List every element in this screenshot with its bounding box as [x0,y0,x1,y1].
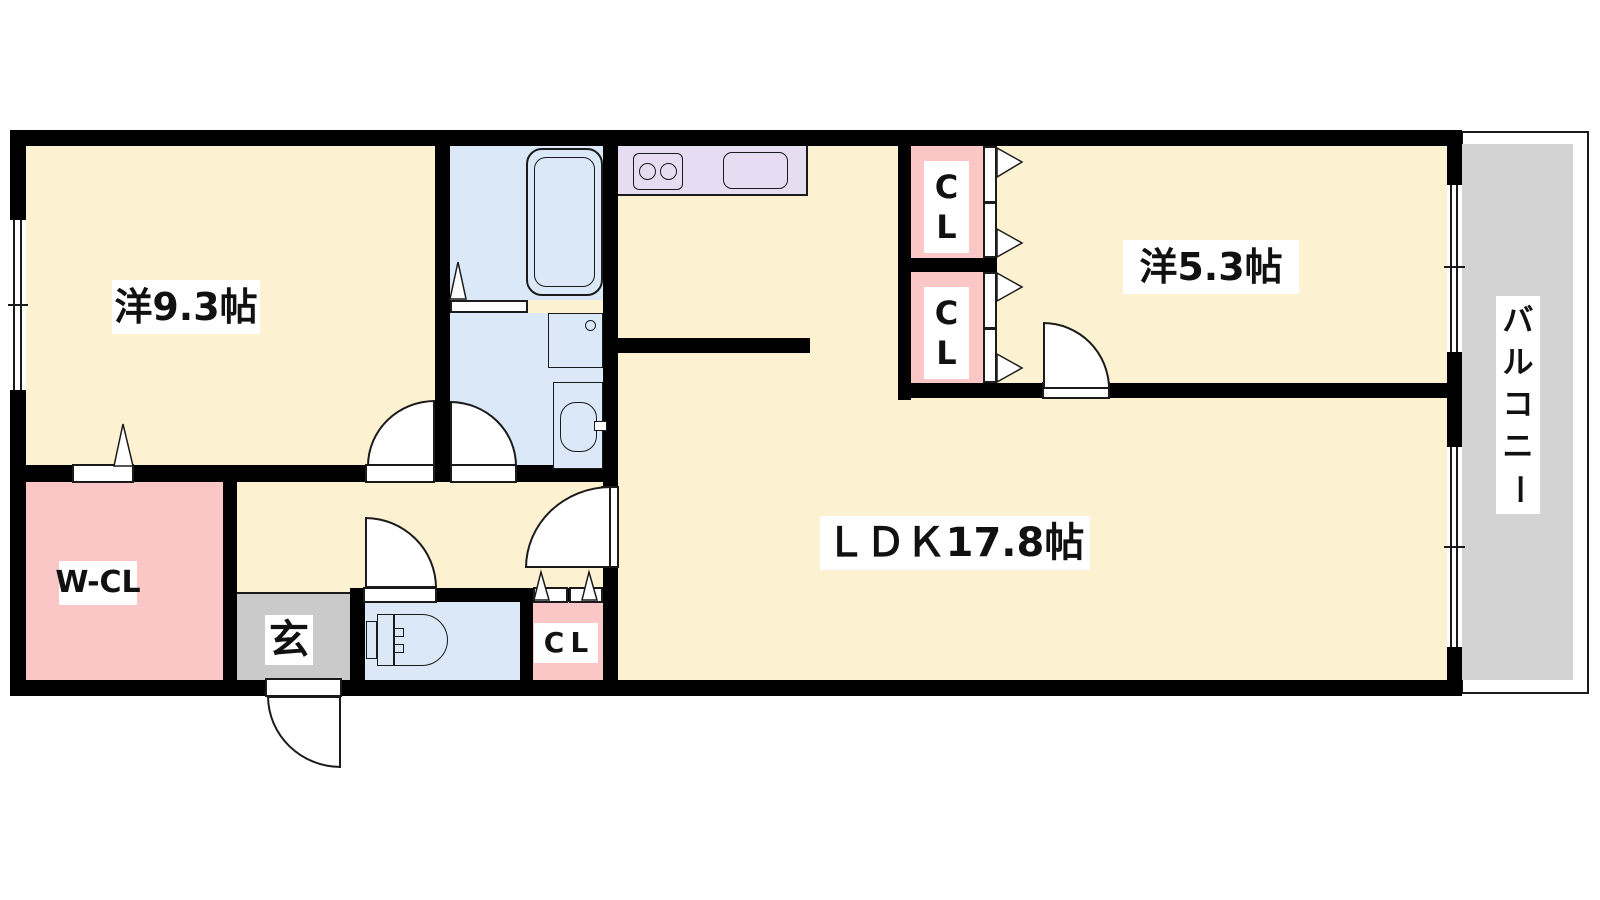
toilet-hinge-1 [394,628,404,637]
window-ldk-tick [1444,546,1465,548]
upper-closet-2-label: C L [924,287,969,379]
entrance-door-leaf [265,678,342,697]
hall-closet-panel-1 [533,587,568,603]
toilet-bowl [394,614,448,666]
wcl-opening [72,464,134,483]
entrance-step-line [237,592,350,594]
ldk-label: ＬＤＫ17.8帖 [820,516,1090,570]
floor-plan: 洋9.3帖 洋5.3帖 ＬＤＫ17.8帖 W-CL 玄 CL C L C L バ… [0,0,1600,900]
stove-burner-2 [660,163,677,180]
wall-kitchen-stub [618,338,810,353]
wall-bottom [10,680,1460,696]
window-left-tick [8,304,28,306]
room9-label: 洋9.3帖 [112,280,260,334]
upper-closet-1-door-a [983,146,997,203]
entrance-door-swing [267,696,341,768]
kitchen-sink [723,152,788,189]
toilet-door-leaf [363,587,437,603]
wall-closet-left [898,146,911,400]
wall-entrance-right [350,594,365,680]
toilet-tank [377,614,394,666]
room5-label: 洋5.3帖 [1123,240,1299,294]
balcony-label: バルコニー [1496,296,1540,514]
vanity-basin [560,402,597,452]
room9-door-leaf [365,464,435,483]
stove-burner-1 [639,163,656,180]
hall-closet-panel-2 [569,587,603,603]
upper-closet-1-label-l: L [936,211,956,243]
bathtub-inner [534,157,595,287]
upper-closet-2-door-b [983,328,997,383]
window-room5-glass-2 [1456,185,1458,352]
vanity-faucet [594,421,607,431]
upper-closet-2-label-l: L [936,337,956,369]
toilet-hinge-2 [394,644,404,653]
wall-toilet-closet [520,602,533,680]
washer-pan-drain [585,320,596,331]
toilet-step [366,621,377,659]
wall-closet-mid [911,258,997,272]
wall-room5-bottom [898,383,1448,398]
bath-door-opening [450,300,528,313]
upper-closet-1-label: C L [924,161,969,253]
window-room5-glass-1 [1450,185,1452,352]
washroom-door-leaf [450,464,517,483]
wall-wcl-right [223,465,237,680]
wall-left [10,130,26,696]
window-room5-tick [1444,266,1465,268]
upper-closet-2-label-c: C [935,297,958,329]
upper-closet-1-door-b [983,202,997,258]
entrance-label: 玄 [265,615,313,665]
hall-closet-label: CL [534,623,598,663]
upper-closet-1-label-c: C [935,171,958,203]
upper-closet-2-door-a [983,272,997,329]
wall-room9-bath [435,146,450,482]
wall-top [10,130,1460,146]
walk-in-closet-label: W-CL [59,561,137,605]
